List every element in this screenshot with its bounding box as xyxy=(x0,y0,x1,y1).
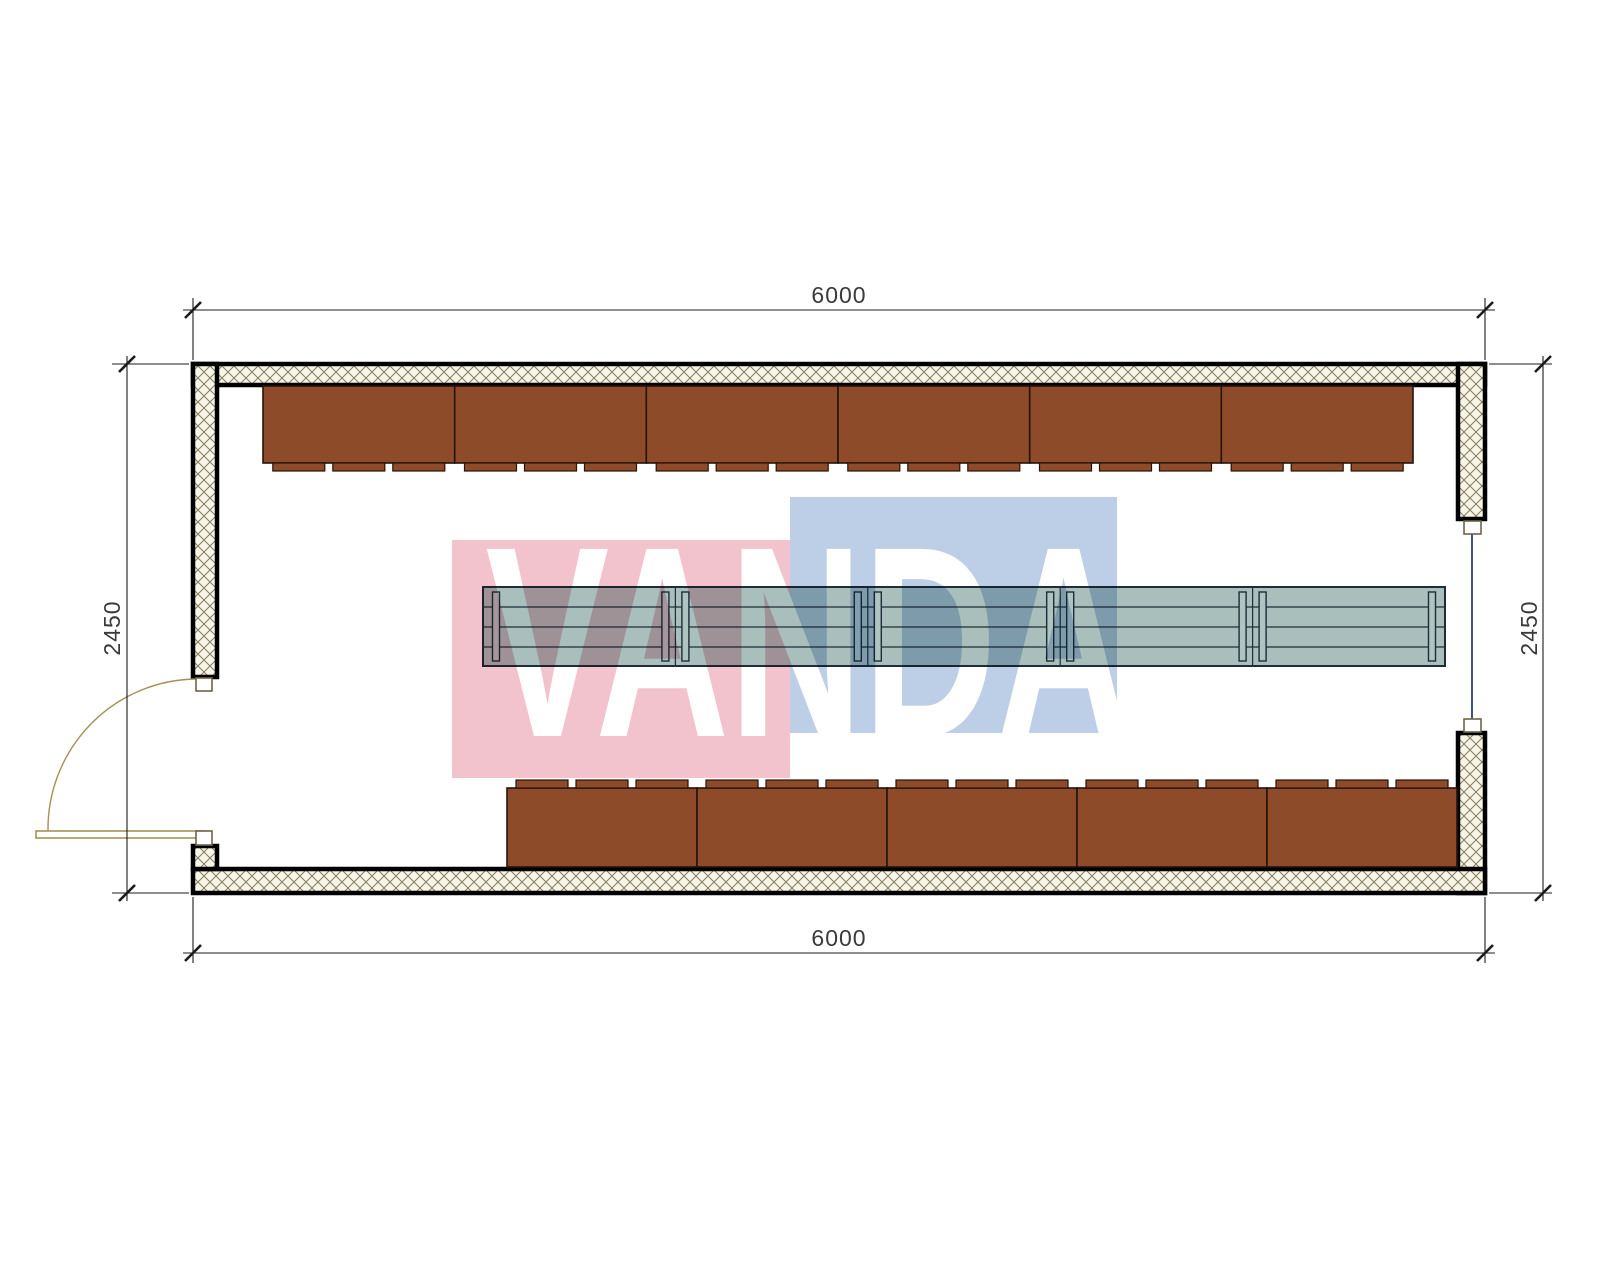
desk xyxy=(1267,788,1457,867)
desk-tab xyxy=(656,463,708,471)
desk-tab xyxy=(333,463,385,471)
door-swing-arc xyxy=(48,679,196,831)
table-leg xyxy=(1259,592,1266,661)
desk-tab xyxy=(1291,463,1343,471)
desk-tab xyxy=(776,463,828,471)
desk-tab xyxy=(956,780,1008,788)
bottom-desk-row xyxy=(507,780,1457,867)
desk-tab xyxy=(1276,780,1328,788)
door-frame-top xyxy=(196,678,212,691)
desk-tab xyxy=(1231,463,1283,471)
window-frame-bottom xyxy=(1464,719,1481,732)
window-frame-top xyxy=(1464,521,1481,534)
desk-tab xyxy=(1206,780,1258,788)
desk xyxy=(1030,386,1222,463)
desk xyxy=(646,386,838,463)
top-desk-row xyxy=(263,386,1413,471)
desk-tab xyxy=(525,463,577,471)
door-frame-bottom xyxy=(196,831,212,845)
desk-tab xyxy=(273,463,325,471)
watermark-pink-square xyxy=(452,540,790,778)
desk xyxy=(838,386,1030,463)
right-wall-upper xyxy=(1458,364,1485,519)
desk xyxy=(455,386,647,463)
desk xyxy=(1077,788,1267,867)
desk-tab xyxy=(706,780,758,788)
desk xyxy=(1221,386,1413,463)
watermark xyxy=(452,497,1117,778)
desk-tab xyxy=(1040,463,1092,471)
desk xyxy=(507,788,697,867)
floor-plan-canvas: VANDA xyxy=(0,0,1600,1280)
door-leaf xyxy=(36,831,206,838)
desk-tab xyxy=(1336,780,1388,788)
desk-tab xyxy=(766,780,818,788)
desk xyxy=(697,788,887,867)
desk-tab xyxy=(516,780,568,788)
desk-tab xyxy=(576,780,628,788)
desk-tab xyxy=(848,463,900,471)
desk-tab xyxy=(393,463,445,471)
desk xyxy=(887,788,1077,867)
table-leg xyxy=(1429,592,1436,661)
desk-tab xyxy=(908,463,960,471)
desk-tab xyxy=(1351,463,1403,471)
desk-tab xyxy=(968,463,1020,471)
left-wall xyxy=(193,364,217,677)
dim-label-right: 2450 xyxy=(1516,600,1542,655)
window xyxy=(1464,521,1481,732)
desk-tab xyxy=(896,780,948,788)
dim-label-top: 6000 xyxy=(811,282,866,308)
watermark-blue-square xyxy=(790,497,1117,733)
table-leg xyxy=(1239,592,1246,661)
desk-tab xyxy=(1016,780,1068,788)
top-wall xyxy=(193,364,1485,385)
door xyxy=(36,678,212,845)
desk-tab xyxy=(1146,780,1198,788)
desk-tab xyxy=(585,463,637,471)
dim-label-left: 2450 xyxy=(99,600,125,655)
desk-tab xyxy=(1396,780,1448,788)
bottom-wall xyxy=(193,869,1485,893)
floor-plan-drawing: VANDA xyxy=(0,0,1600,1280)
desk-tab xyxy=(465,463,517,471)
desk-tab xyxy=(1100,463,1152,471)
desk-tab xyxy=(1086,780,1138,788)
desk-tab xyxy=(1160,463,1212,471)
desk-tab xyxy=(636,780,688,788)
door-jamb-stub xyxy=(193,846,217,869)
desk xyxy=(263,386,455,463)
dim-label-bottom: 6000 xyxy=(811,925,866,951)
desk-tab xyxy=(826,780,878,788)
desk-tab xyxy=(716,463,768,471)
